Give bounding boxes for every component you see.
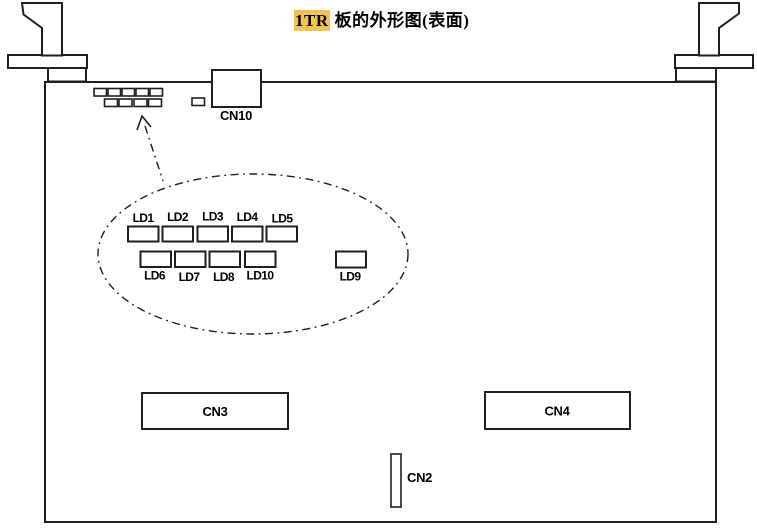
left-handle-bar — [8, 55, 87, 68]
led-indicator — [134, 99, 147, 107]
led-indicator — [122, 89, 135, 97]
led-indicator — [119, 99, 132, 107]
ld8-label: LD8 — [213, 270, 235, 284]
cn4-label: CN4 — [544, 404, 570, 419]
ld6-box — [141, 252, 172, 268]
left-handle-step — [48, 68, 86, 82]
ld5-label: LD5 — [272, 212, 294, 226]
cn3-label: CN3 — [202, 404, 227, 419]
component-small-rect — [192, 98, 205, 106]
cn10-label: CN10 — [220, 108, 252, 123]
cn2-label: CN2 — [407, 470, 432, 485]
ld7-label: LD7 — [179, 270, 201, 284]
ld3-box — [198, 227, 229, 242]
diagram-canvas: CN10 LD1 LD2 LD3 LD4 LD5 LD6 — [0, 0, 757, 529]
led-indicator — [149, 99, 162, 107]
led-indicator — [136, 89, 149, 97]
ld1-box — [128, 227, 159, 242]
ld9-label: LD9 — [340, 270, 362, 284]
board-body — [45, 82, 716, 522]
led-indicator — [108, 89, 121, 97]
ld10-box — [245, 252, 276, 268]
ld10-label: LD10 — [247, 269, 275, 283]
ld8-box — [210, 252, 241, 268]
ld3-label: LD3 — [202, 210, 224, 224]
ld2-label: LD2 — [167, 210, 189, 224]
ld7-box — [175, 252, 206, 268]
ld2-box — [163, 227, 194, 242]
ld5-box — [267, 227, 298, 242]
right-handle-step — [676, 68, 716, 82]
right-handle-bar — [675, 55, 753, 68]
led-indicator — [105, 99, 118, 107]
led-indicator — [94, 89, 107, 97]
ld1-label: LD1 — [133, 211, 155, 225]
ld9-box — [336, 252, 366, 268]
ld4-box — [232, 227, 263, 242]
led-indicator — [150, 89, 163, 97]
board-outline-diagram: 1TR板的外形图(表面) CN10 LD1 LD2 L — [0, 0, 757, 529]
left-handle-lever — [22, 3, 62, 56]
ld6-label: LD6 — [144, 269, 166, 283]
ld4-label: LD4 — [237, 210, 259, 224]
connector-cn2 — [391, 454, 401, 507]
right-handle-lever — [699, 3, 739, 56]
connector-cn10 — [212, 70, 261, 107]
